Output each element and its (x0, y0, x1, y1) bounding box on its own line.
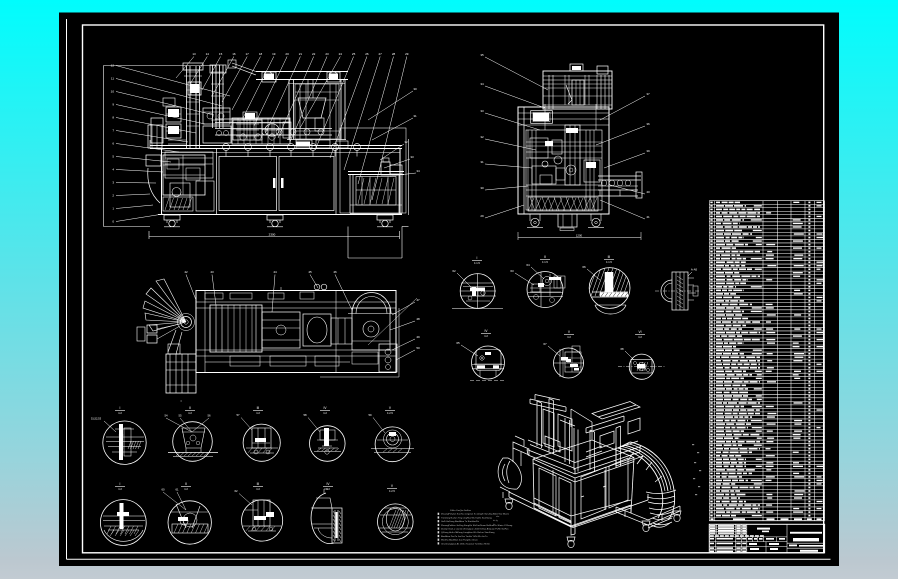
svg-text:1:2: 1:2 (256, 487, 260, 491)
svg-text:62: 62 (452, 269, 456, 273)
svg-text:1200: 1200 (576, 234, 583, 238)
svg-text:37: 37 (646, 92, 650, 96)
svg-text:59: 59 (368, 413, 372, 417)
svg-text:68: 68 (620, 347, 624, 351)
svg-text:BiaoMian PenTu JunYun YanSe Yi: BiaoMian PenTu JunYun YanSe YiZhi Wu Liu… (441, 536, 488, 538)
svg-text:20: 20 (285, 52, 289, 56)
svg-text:31: 31 (480, 160, 484, 164)
svg-text:35: 35 (480, 53, 484, 57)
svg-text:27: 27 (379, 52, 383, 56)
svg-text:47: 47 (416, 298, 420, 302)
svg-text:1:2: 1:2 (188, 411, 192, 415)
svg-text:1:2: 1:2 (184, 487, 188, 491)
svg-text:WeiZhu BiaoMian Zuo FangXiu Ch: WeiZhu BiaoMian Zuo FangXiu ChuLi (441, 540, 478, 542)
svg-text:36: 36 (646, 122, 650, 126)
svg-text:GeZi HuDong BiaoMian Tu RunHua: GeZi HuDong BiaoMian Tu RunHuaZhi (441, 521, 479, 523)
svg-text:1:1.5: 1:1.5 (542, 260, 548, 264)
svg-text:65: 65 (456, 341, 460, 345)
svg-text:43: 43 (210, 270, 214, 274)
svg-text:1:1.5: 1:1.5 (474, 261, 480, 265)
svg-text:45: 45 (308, 270, 312, 274)
svg-text:A-A5: A-A5 (691, 268, 698, 272)
svg-text:de fg: de fg (493, 520, 499, 522)
svg-text:1:2: 1:2 (484, 334, 488, 338)
svg-text:15: 15 (219, 52, 223, 56)
svg-text:12: 12 (111, 64, 115, 68)
svg-text:II: II (189, 406, 191, 410)
svg-text:III: III (257, 406, 260, 410)
svg-text:24: 24 (339, 52, 343, 56)
svg-text:1:2: 1:2 (638, 335, 642, 339)
svg-text:1:2: 1:2 (118, 411, 122, 415)
svg-text:29: 29 (405, 52, 409, 56)
svg-text:33: 33 (410, 155, 414, 159)
svg-text:61: 61 (175, 488, 179, 492)
svg-text:II: II (544, 255, 546, 259)
svg-text:54: 54 (164, 414, 168, 418)
svg-text:60: 60 (161, 488, 165, 492)
svg-text:21: 21 (299, 52, 303, 56)
svg-text:16: 16 (232, 52, 236, 56)
svg-text:1:1.5: 1:1.5 (606, 260, 612, 264)
svg-text:1:2: 1:2 (118, 487, 122, 491)
svg-text:33: 33 (480, 109, 484, 113)
svg-text:DianQi XianLu LianJie ZhengQue: DianQi XianLu LianJie ZhengQue JieDi KeK… (441, 528, 509, 531)
svg-text:13: 13 (192, 52, 196, 56)
svg-text:YunDong BuJian Ying LingHuo Wu: YunDong BuJian Ying LingHuo Wu KaZhi Xia… (441, 517, 492, 519)
svg-text:49: 49 (416, 335, 420, 339)
svg-text:55: 55 (178, 414, 182, 418)
svg-text:JiShu YaoQiu GuiFan: JiShu YaoQiu GuiFan (450, 510, 472, 512)
svg-text:I: I (120, 482, 121, 486)
svg-text:32: 32 (480, 135, 484, 139)
svg-text:II: II (185, 482, 187, 486)
svg-text:ZhuangPeiHou JinXing KongZai S: ZhuangPeiHou JinXing KongZai ShiYunZhuan… (441, 525, 513, 527)
svg-text:66: 66 (582, 265, 586, 269)
svg-text:30: 30 (480, 186, 484, 190)
svg-text:11: 11 (111, 77, 114, 81)
svg-text:64: 64 (526, 263, 530, 267)
svg-text:46: 46 (333, 270, 337, 274)
svg-text:26: 26 (365, 52, 369, 56)
svg-text:23: 23 (325, 52, 329, 56)
svg-text:18: 18 (259, 52, 263, 56)
svg-text:67: 67 (543, 342, 547, 346)
svg-text:34: 34 (416, 169, 420, 173)
svg-text:42: 42 (184, 270, 188, 274)
svg-text:2300: 2300 (269, 233, 276, 237)
svg-text:30: 30 (413, 87, 417, 91)
svg-text:17: 17 (246, 52, 250, 56)
svg-text:32: 32 (404, 140, 408, 144)
svg-text:1:2.5: 1:2.5 (389, 489, 395, 493)
svg-text:19: 19 (272, 52, 276, 56)
svg-text:25: 25 (352, 52, 356, 56)
svg-text:22: 22 (312, 52, 316, 56)
svg-text:57: 57 (236, 413, 240, 417)
svg-text:III: III (608, 255, 611, 259)
svg-text:1:2: 1:2 (323, 411, 327, 415)
svg-text:I: I (477, 256, 478, 260)
svg-text:56: 56 (207, 414, 211, 418)
svg-text:28: 28 (392, 52, 396, 56)
svg-text:I: I (120, 406, 121, 410)
svg-text:51,52,53: 51,52,53 (91, 417, 102, 421)
svg-text:62: 62 (234, 489, 238, 493)
svg-text:10: 10 (111, 90, 115, 94)
svg-text:VI: VI (638, 330, 641, 334)
svg-text:1:2: 1:2 (567, 335, 571, 339)
svg-text:58: 58 (303, 413, 307, 417)
svg-text:39: 39 (646, 149, 650, 153)
svg-text:34: 34 (480, 82, 484, 86)
svg-text:63: 63 (510, 269, 514, 273)
svg-text:29: 29 (480, 214, 484, 218)
svg-text:1:2: 1:2 (326, 487, 330, 491)
svg-text:41: 41 (646, 215, 650, 219)
svg-text:1:2: 1:2 (256, 411, 260, 415)
svg-text:31: 31 (413, 114, 417, 118)
svg-text:ZhuangPeiQian SuoYou LingJian: ZhuangPeiQian SuoYou LingJian Xu QingXi … (441, 514, 510, 516)
svg-text:40: 40 (646, 190, 650, 194)
svg-text:1:2.5: 1:2.5 (387, 411, 393, 415)
svg-text:III: III (257, 482, 260, 486)
svg-text:44: 44 (273, 270, 277, 274)
svg-text:48: 48 (416, 317, 420, 321)
svg-text:14: 14 (206, 52, 210, 56)
svg-text:50: 50 (416, 346, 420, 350)
svg-text:QiDong HuiLu MiFeng LiangHao W: QiDong HuiLu MiFeng LiangHao Wu XieLou X… (441, 532, 495, 534)
svg-text:ChuChangQian An JiShu TiaoJian: ChuChangQian An JiShu TiaoJian YanShou H… (441, 542, 491, 545)
